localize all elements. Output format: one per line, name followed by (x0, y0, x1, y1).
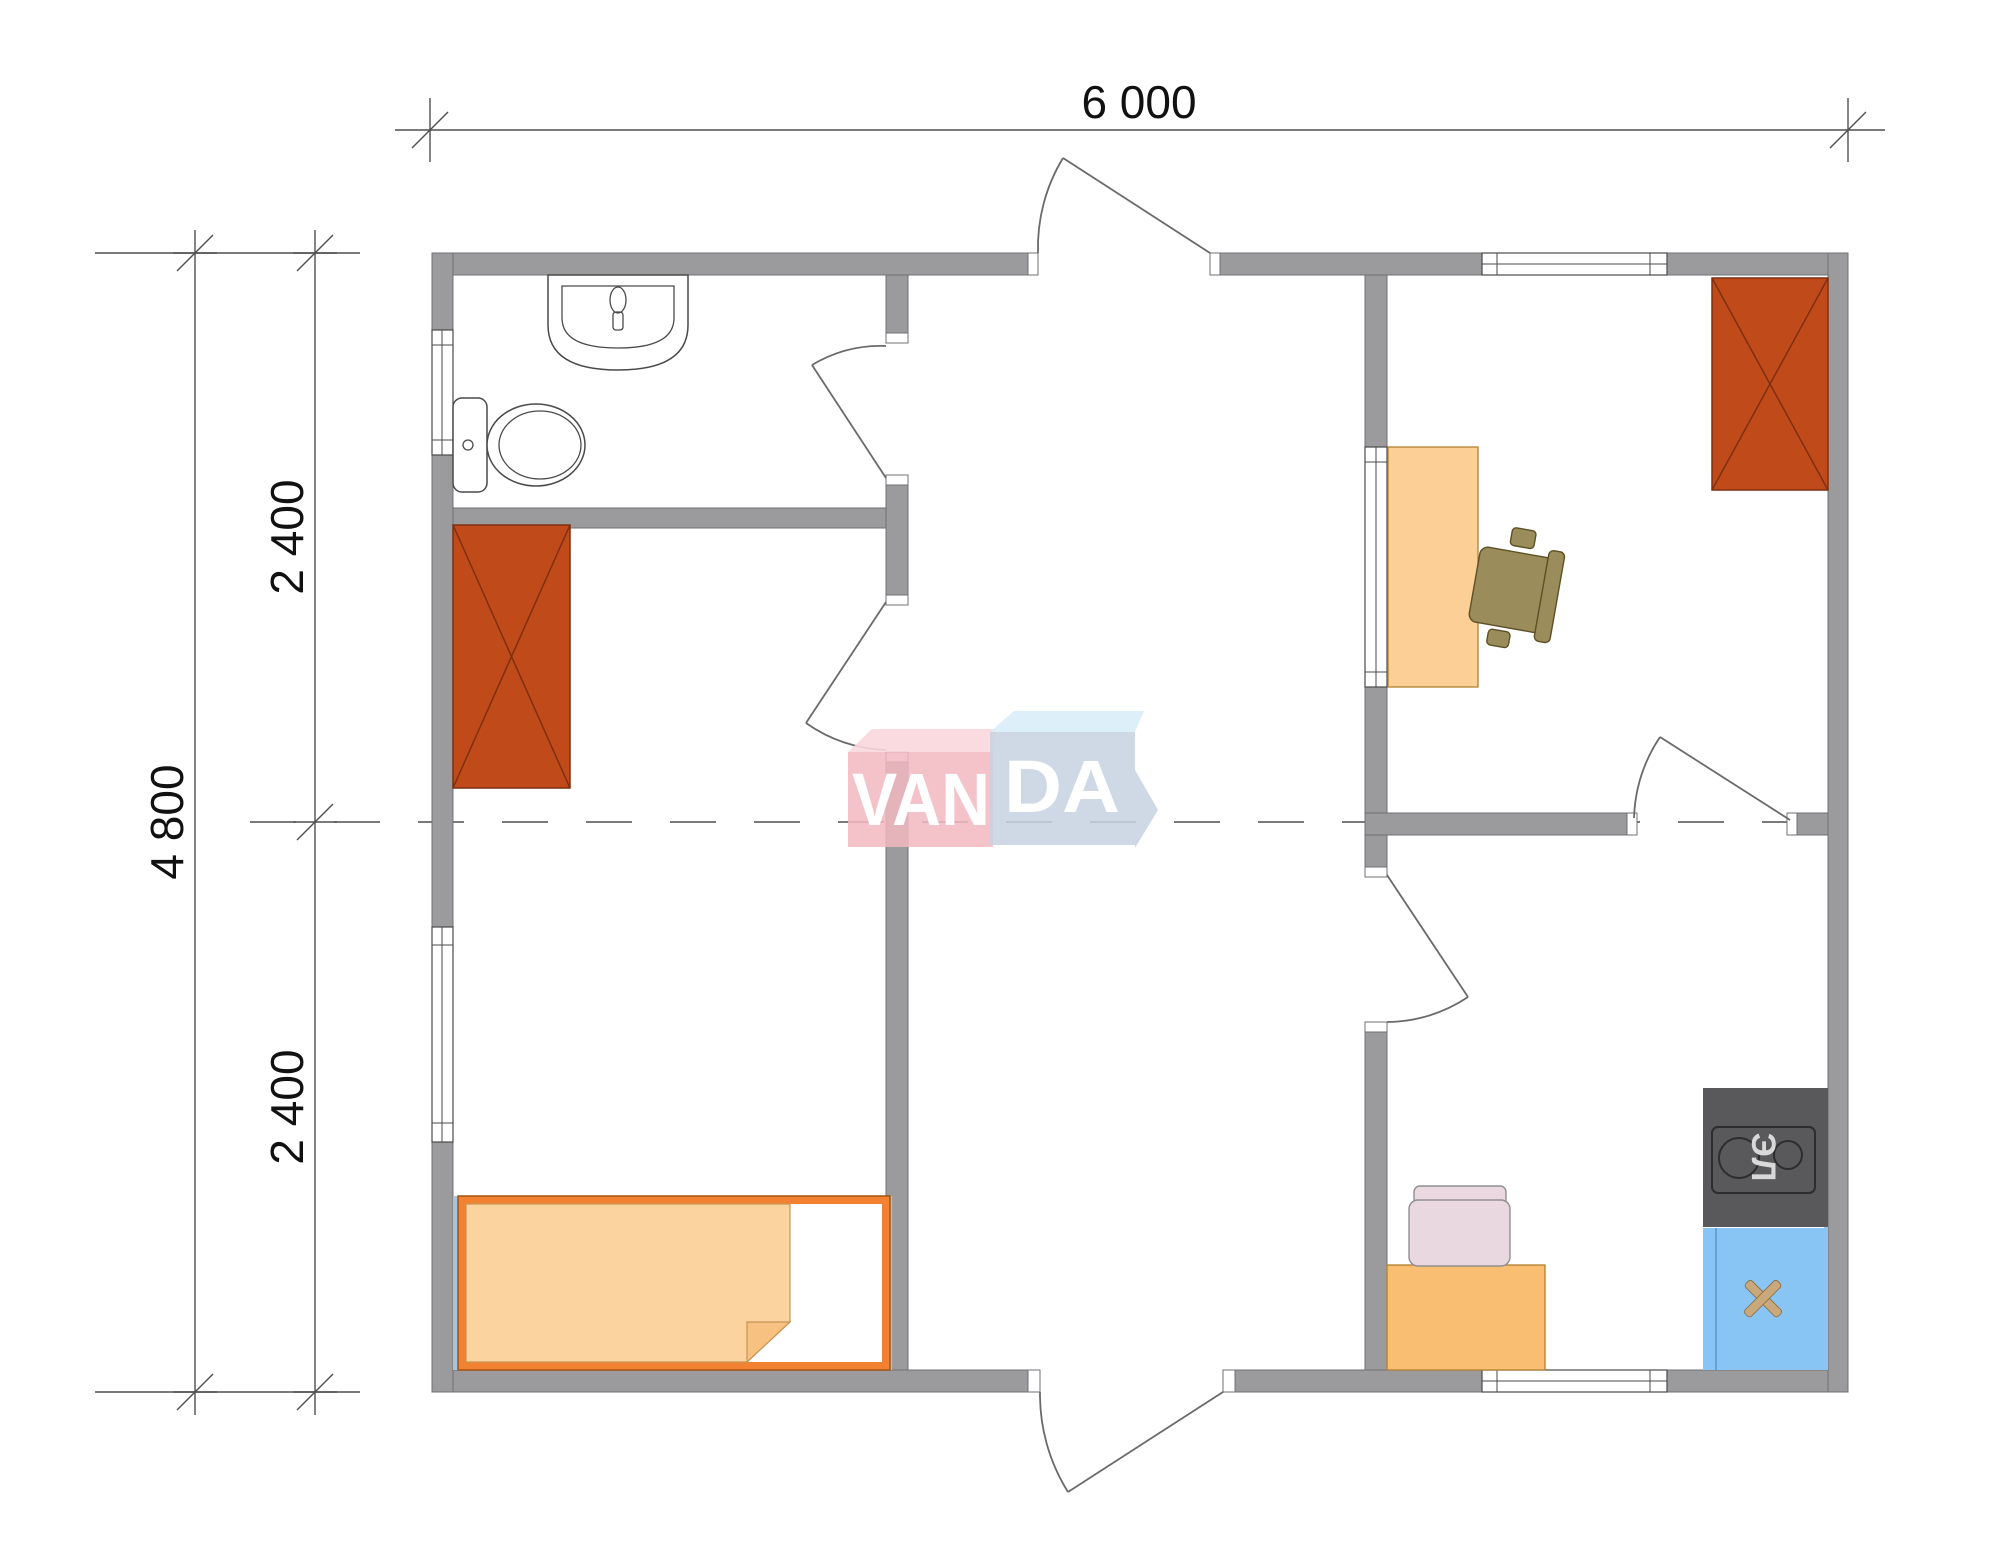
wall-left-lower (432, 1142, 453, 1392)
floor-plan-drawing: ЭЛ (0, 0, 2000, 1563)
bathroom-fixtures (453, 275, 688, 492)
wall-bottom-middle (1235, 1370, 1482, 1392)
window-bathroom-left (432, 330, 453, 455)
office-wall-lower (1365, 687, 1387, 813)
kitchen-wall-upper (1365, 835, 1387, 867)
window-bedroom-left (432, 927, 453, 1142)
office-door (1634, 737, 1790, 820)
hall-wall-upper (886, 275, 908, 333)
wall-right (1828, 253, 1848, 1392)
entrance-door-bottom (1040, 1392, 1223, 1492)
jamb (1210, 253, 1220, 275)
dim-left-outer: 4 800 (141, 230, 217, 1415)
wall-top-left (432, 253, 1028, 275)
kitchen-chair-icon (1409, 1186, 1510, 1266)
kitchen-sink-icon (1703, 1228, 1828, 1370)
divider-wall-left (1365, 813, 1627, 835)
window-office-top (1482, 253, 1667, 275)
entrance-door-top (1038, 158, 1210, 253)
watermark-logo: VAN DA (848, 711, 1158, 848)
jamb (1365, 867, 1387, 877)
dim-label-height: 4 800 (141, 764, 193, 879)
dim-label-upper: 2 400 (261, 479, 313, 594)
stove-icon: ЭЛ (1703, 1088, 1828, 1227)
wall-left-upper (432, 253, 453, 330)
wall-left-middle (432, 455, 453, 927)
logo-text-da: DA (1004, 745, 1120, 828)
divider-wall-right (1797, 813, 1828, 835)
jamb (886, 475, 908, 485)
window-kitchen-bottom (1482, 1370, 1667, 1392)
desk-icon (1388, 447, 1478, 687)
logo-pink-top-face (848, 729, 997, 752)
window-office-interior (1365, 447, 1387, 687)
kitchen-wall-lower (1365, 1032, 1387, 1370)
jamb (1028, 1370, 1040, 1392)
jamb (886, 595, 908, 605)
stove-label: ЭЛ (1744, 1133, 1782, 1184)
sink-icon (548, 275, 688, 370)
wall-bottom-left (432, 1370, 1028, 1392)
kitchen-door (1387, 875, 1468, 1022)
office-wall-upper (1365, 275, 1387, 447)
wall-top-right (1667, 253, 1848, 275)
hall-wall-middle (886, 485, 908, 595)
office-chair-icon (1465, 522, 1569, 655)
floor-plan-canvas: ЭЛ (0, 0, 2000, 1563)
jamb (1627, 813, 1637, 835)
bed-icon (458, 1196, 890, 1370)
bathroom-door (812, 346, 886, 478)
wall-bottom-right (1667, 1370, 1848, 1392)
dim-label-width: 6 000 (1081, 76, 1196, 128)
logo-blue-top-face (990, 711, 1144, 732)
jamb (1223, 1370, 1235, 1392)
jamb (1787, 813, 1797, 835)
toilet-icon (453, 398, 585, 492)
dim-label-lower: 2 400 (261, 1049, 313, 1164)
jamb (886, 333, 908, 343)
logo-text-van: VAN (852, 758, 990, 841)
bedroom-door (806, 602, 886, 750)
wardrobe-bedroom-icon (453, 525, 570, 788)
kitchen-table-icon (1387, 1265, 1545, 1370)
dim-top: 6 000 (395, 76, 1885, 162)
jamb (1028, 253, 1038, 275)
wall-top-middle (1220, 253, 1482, 275)
wardrobe-office-icon (1712, 278, 1828, 490)
logo-blue-arrow (1135, 770, 1158, 848)
jamb (1365, 1022, 1387, 1032)
